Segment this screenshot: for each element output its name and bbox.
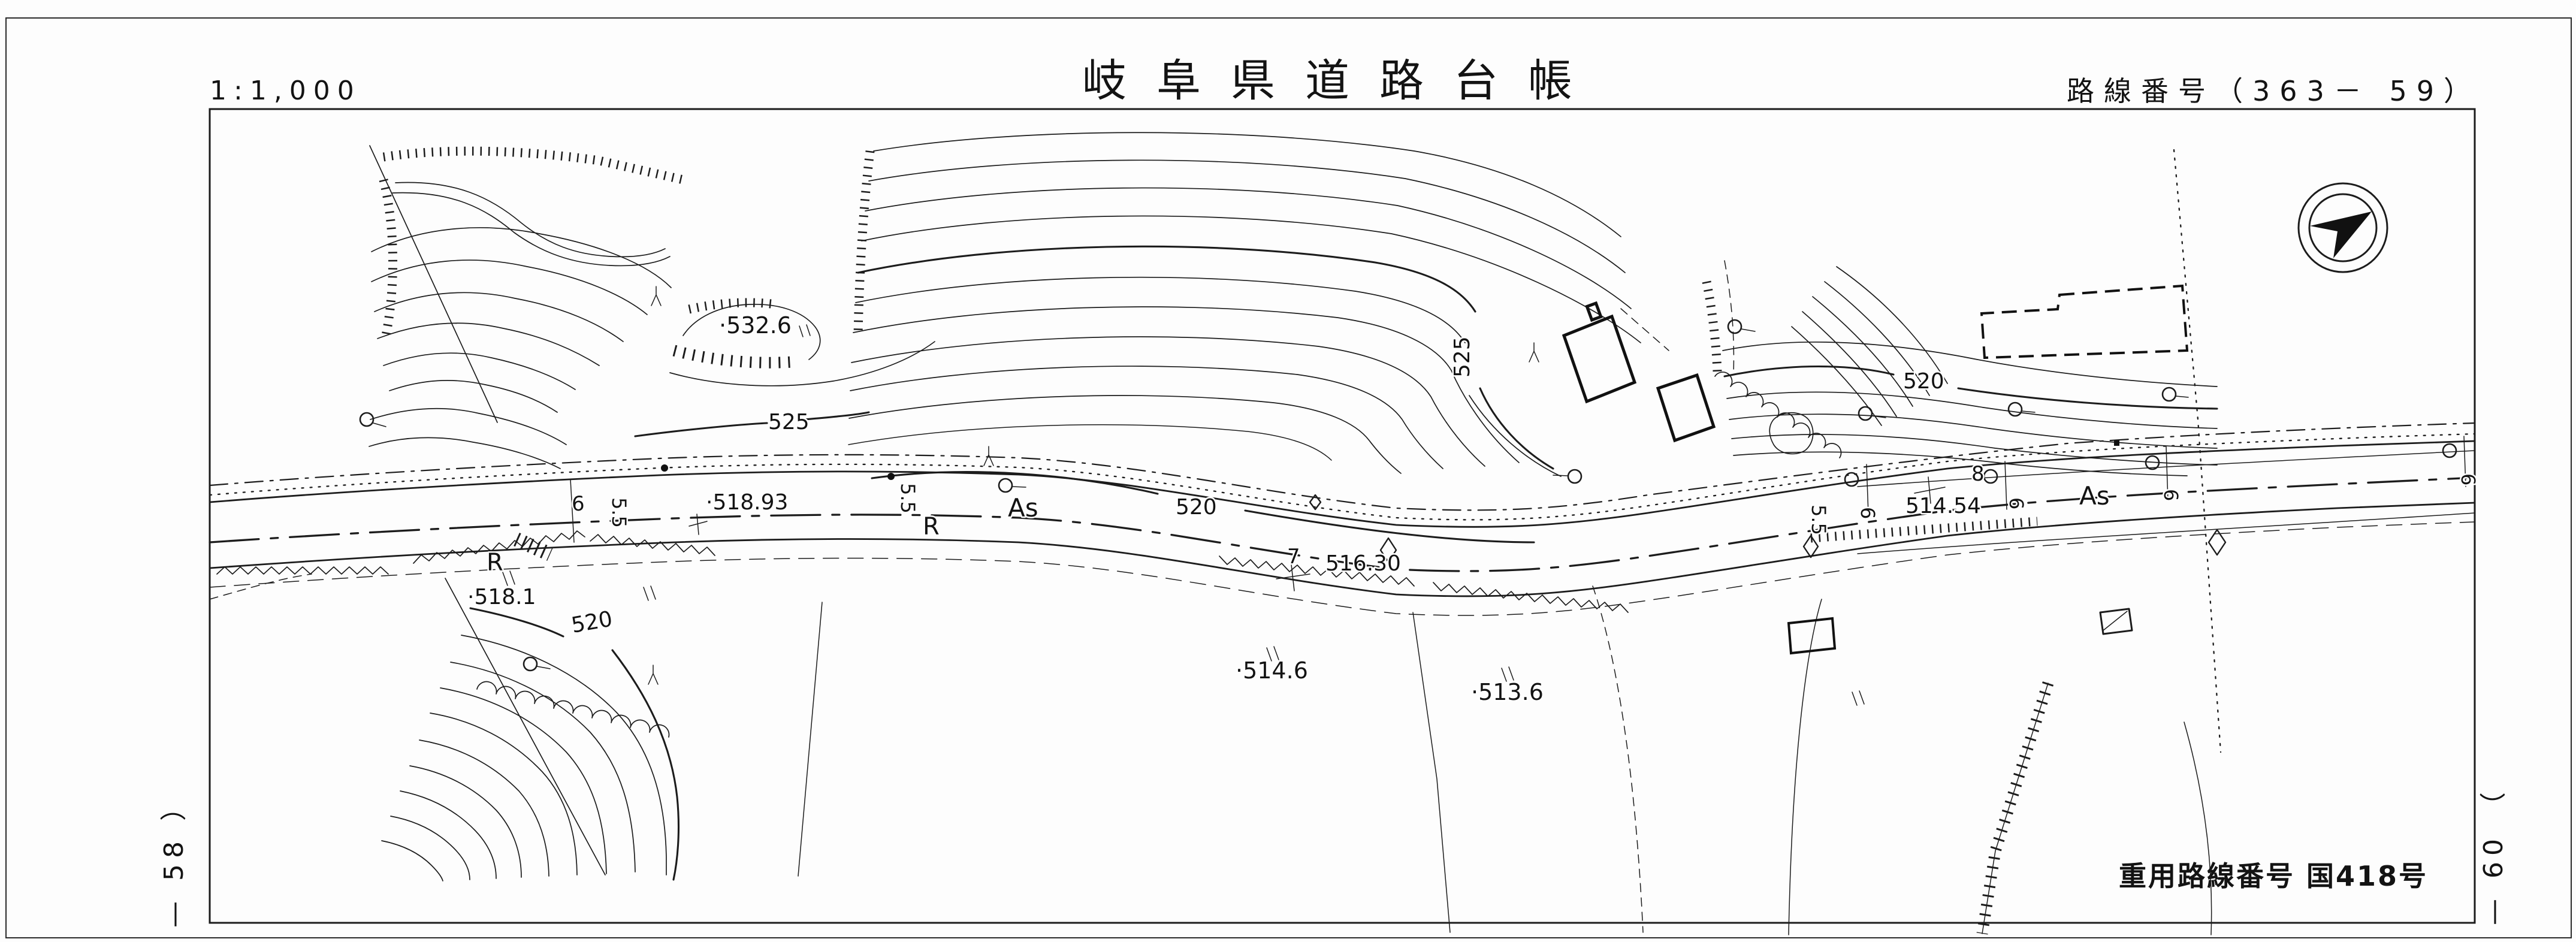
page-title: 岐阜県道路台帳 bbox=[1082, 55, 1602, 107]
survey-point-dots bbox=[661, 440, 2119, 480]
road-width-label: 5.5 bbox=[1807, 505, 1830, 535]
north-arrow-icon bbox=[2299, 183, 2387, 272]
curve-point-label: R bbox=[923, 513, 940, 541]
map-labels: ·532.6 ·518.1 ·514.6 ·513.6 ·518.93 516.… bbox=[467, 312, 2480, 705]
road-register-sheet: 1:1,000 岐阜県道路台帳 路線番号（363－ 59） 重用路線番号 国41… bbox=[0, 0, 2576, 942]
grass-symbols bbox=[648, 286, 1539, 684]
contours-upper-left bbox=[369, 151, 935, 469]
road-fence-dotted bbox=[210, 434, 2475, 520]
pavement-type-label: As bbox=[2079, 481, 2110, 511]
pavement-type-label: As bbox=[1008, 493, 1038, 523]
boundary-dash-upper bbox=[210, 423, 2475, 510]
road-width-label: 5.5 bbox=[896, 483, 919, 514]
contours-lower-left bbox=[382, 608, 678, 881]
spot-elevation: ·514.6 bbox=[1236, 657, 1308, 684]
contour-label: 525 bbox=[768, 410, 810, 434]
station-elevation: 516.30 bbox=[1325, 551, 1401, 576]
road-width-label: 6 bbox=[1856, 507, 1879, 519]
contour-label: 525 bbox=[1450, 336, 1475, 378]
curve-point-label: R bbox=[487, 549, 503, 576]
station-number: 8 bbox=[1971, 462, 1985, 486]
contour-label: 520 bbox=[1903, 369, 1944, 394]
joint-route-note: 重用路線番号 国418号 bbox=[2119, 860, 2428, 892]
map-canvas: 1:1,000 岐阜県道路台帳 路線番号（363－ 59） 重用路線番号 国41… bbox=[0, 0, 2576, 942]
scale-label: 1:1,000 bbox=[210, 76, 361, 106]
shed-hatched bbox=[2100, 609, 2132, 634]
building-solid-1 bbox=[1564, 316, 1635, 401]
road-width-label: 6 bbox=[572, 492, 585, 516]
paper-border bbox=[6, 18, 2571, 938]
station-number: 7 bbox=[1287, 545, 1300, 569]
road-width-label: 6 bbox=[2457, 473, 2480, 485]
building-dashed bbox=[1982, 286, 2187, 358]
spot-elevation: ·518.1 bbox=[467, 585, 536, 609]
adjacent-sheet-right-label: — 60 （ bbox=[2478, 786, 2509, 925]
road-width-label: 5.5 bbox=[608, 497, 630, 528]
building-solid-2 bbox=[1658, 375, 1714, 440]
station-elevation: ·518.93 bbox=[706, 490, 788, 515]
spot-elevation: ·532.6 bbox=[719, 312, 792, 339]
road-width-label: 6 bbox=[2160, 489, 2182, 501]
road-edge-upper bbox=[210, 441, 2475, 527]
building-small bbox=[1789, 618, 1835, 653]
contour-label: 520 bbox=[1176, 495, 1217, 520]
contour-label: 520 bbox=[569, 607, 614, 638]
route-number-label: 路線番号（363－ 59） bbox=[2067, 75, 2481, 107]
spot-elevation: ·513.6 bbox=[1471, 679, 1544, 705]
field-boundaries bbox=[798, 261, 2048, 935]
station-elevation: 514.54 bbox=[1905, 494, 1981, 518]
road-width-label: 6 bbox=[2005, 497, 2028, 509]
contours-right bbox=[1707, 267, 2217, 476]
road-edge-lower bbox=[210, 503, 2475, 596]
map-frame bbox=[210, 109, 2475, 923]
adjacent-sheet-left-label: — 58 ） bbox=[159, 789, 189, 928]
road-lines bbox=[210, 423, 2475, 615]
